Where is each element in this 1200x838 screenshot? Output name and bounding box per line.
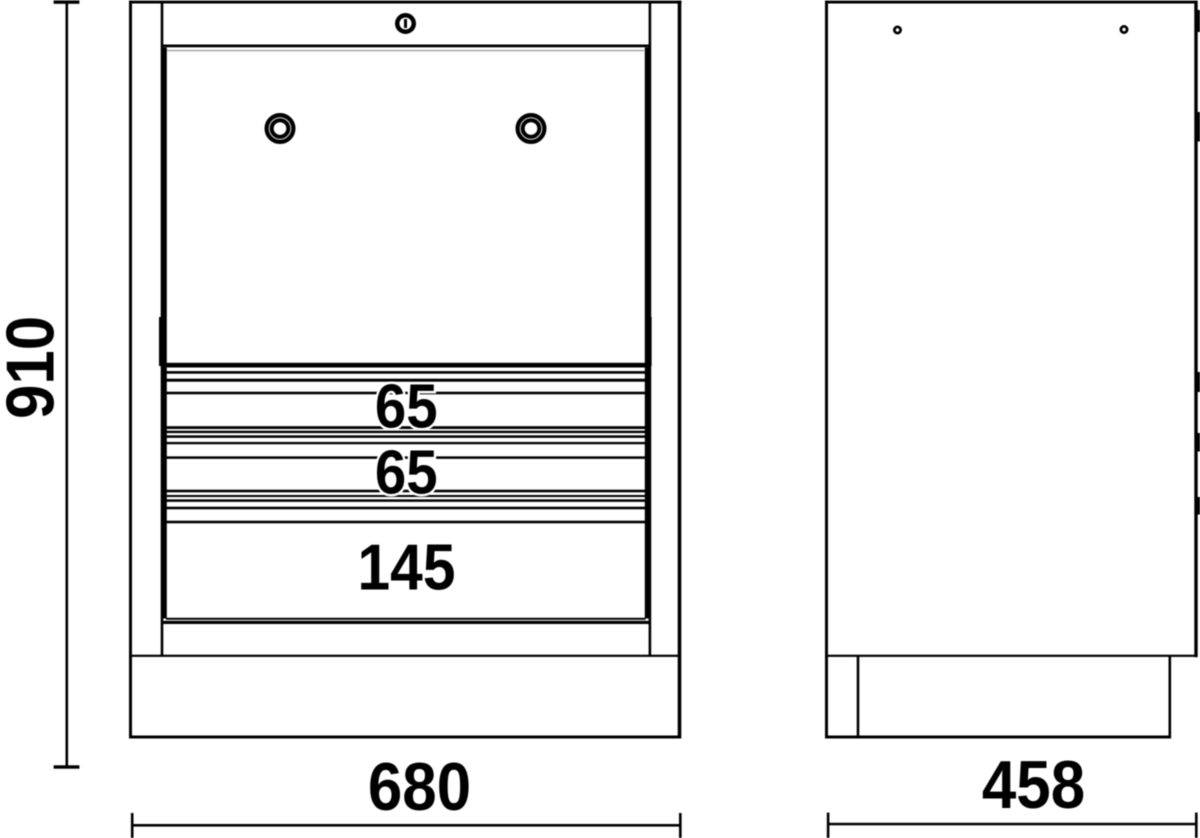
svg-text:458: 458: [982, 746, 1085, 822]
svg-text:65: 65: [375, 371, 438, 441]
svg-text:910: 910: [0, 316, 68, 419]
svg-text:680: 680: [368, 748, 471, 824]
svg-text:65: 65: [375, 437, 438, 507]
svg-text:145: 145: [358, 532, 456, 604]
